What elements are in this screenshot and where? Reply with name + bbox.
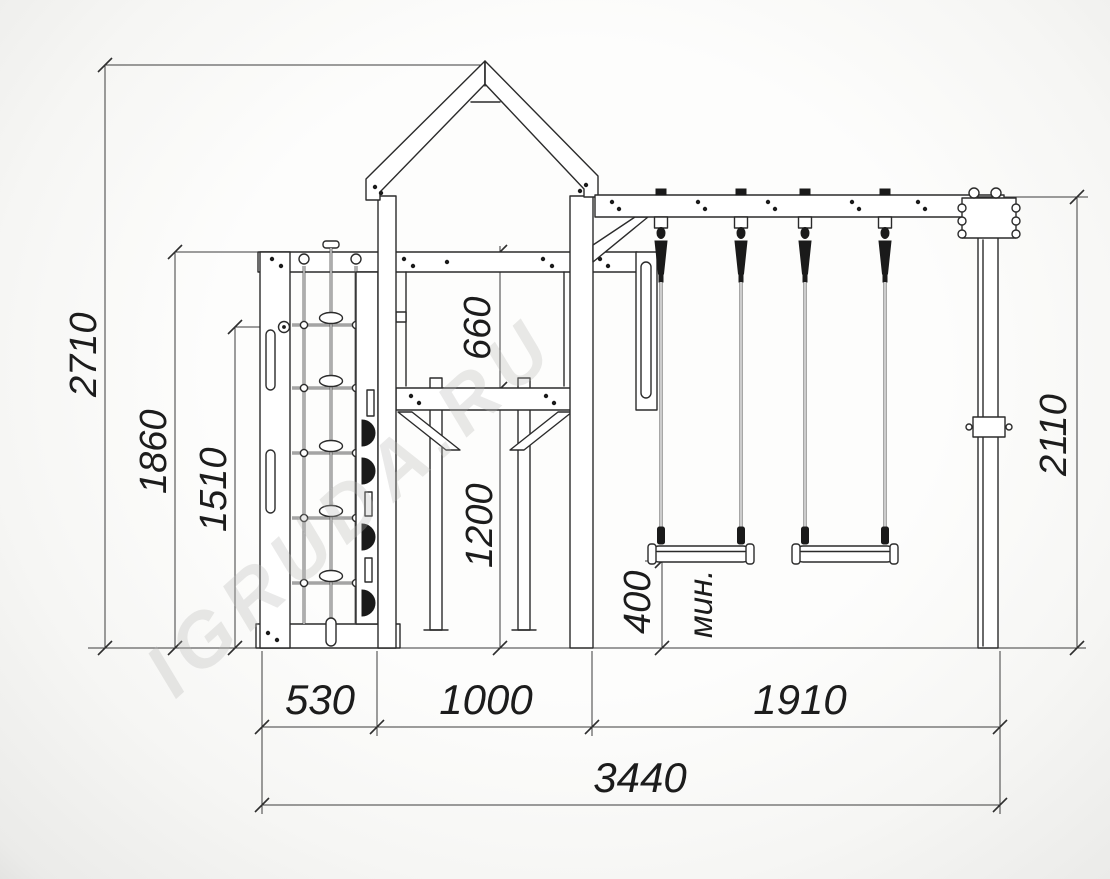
dim-width-swing-bay: 1910 — [753, 676, 847, 723]
swing-seat — [792, 544, 898, 564]
blueprint-page: IGRUDA.RU 2710 1860 1510 660 1200 400 ми… — [0, 0, 1110, 879]
roof — [366, 61, 598, 200]
swings — [648, 189, 898, 564]
swing-beam — [595, 195, 1004, 217]
dim-seat-clearance-note: мин. — [682, 570, 719, 638]
blueprint-svg: IGRUDA.RU 2710 1860 1510 660 1200 400 ми… — [0, 0, 1110, 879]
swing-seat — [648, 544, 754, 564]
tower-post-right — [570, 196, 593, 648]
dim-platform-to-ground: 1200 — [459, 483, 501, 568]
dim-seat-clearance: 400 — [617, 571, 659, 634]
post-bracket — [966, 417, 1012, 437]
dim-frame-top-height: 1860 — [133, 409, 175, 494]
dim-width-climb: 530 — [285, 676, 356, 723]
dim-overall-height: 2710 — [63, 312, 105, 398]
swing-hanger — [655, 189, 892, 544]
tower-inner-leg — [518, 378, 530, 630]
dimension-labels: 2710 1860 1510 660 1200 400 мин. 2110 53… — [63, 297, 1075, 801]
dim-beam-height: 2110 — [1033, 394, 1075, 477]
dim-width-tower: 1000 — [439, 676, 533, 723]
dim-handle-height: 1510 — [193, 447, 235, 532]
dim-width-total: 3440 — [593, 754, 687, 801]
dim-rail-to-platform: 660 — [457, 297, 499, 360]
